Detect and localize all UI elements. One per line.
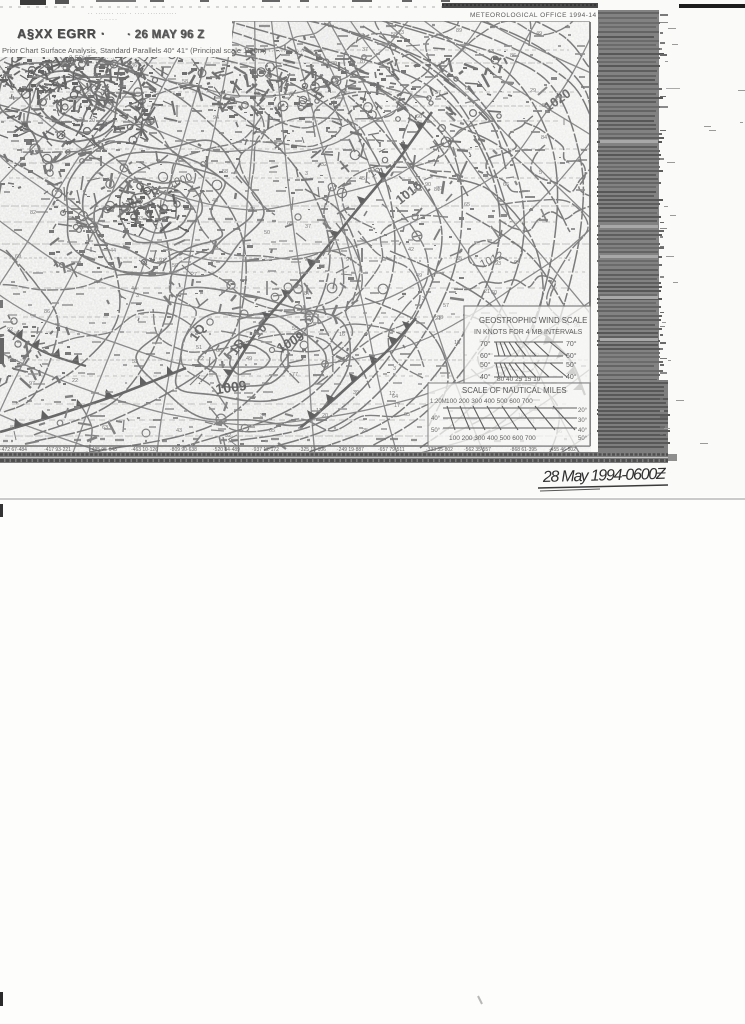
svg-text:38: 38 (437, 315, 443, 321)
svg-text:32: 32 (377, 88, 383, 94)
svg-text:37: 37 (305, 224, 311, 230)
svg-text:100 200 300 400 500 600 700: 100 200 300 400 500 600 700 (446, 398, 533, 405)
svg-text:93: 93 (137, 216, 143, 222)
svg-text:90: 90 (425, 182, 431, 188)
svg-text:85: 85 (456, 256, 462, 262)
svg-text:· 26 MAY 96 Z: · 26 MAY 96 Z (127, 29, 204, 41)
svg-text:20: 20 (322, 413, 328, 419)
svg-text:58: 58 (182, 79, 188, 85)
svg-text:70°: 70° (566, 340, 577, 348)
svg-text:80 40 25 15 10: 80 40 25 15 10 (497, 376, 541, 383)
svg-text:50°: 50° (566, 361, 577, 369)
svg-text:65: 65 (464, 202, 470, 208)
svg-text:78: 78 (288, 92, 294, 98)
svg-text:50°: 50° (480, 361, 491, 369)
svg-text:82: 82 (30, 210, 36, 216)
svg-text:23: 23 (398, 30, 404, 36)
svg-text:81: 81 (434, 187, 440, 193)
svg-text:94: 94 (213, 115, 219, 121)
svg-text:80: 80 (7, 39, 13, 45)
svg-text:3: 3 (422, 296, 425, 302)
svg-text:21: 21 (484, 289, 490, 295)
svg-text:49: 49 (212, 198, 218, 204)
svg-text:44: 44 (131, 286, 137, 292)
svg-text:45: 45 (359, 176, 365, 182)
svg-text:64: 64 (392, 394, 398, 400)
svg-text:42: 42 (408, 247, 414, 253)
svg-text:29: 29 (331, 61, 337, 67)
svg-text:66: 66 (503, 182, 509, 188)
svg-text:39: 39 (353, 390, 359, 396)
svg-text:91: 91 (159, 258, 165, 264)
svg-text:92: 92 (7, 327, 13, 333)
svg-text:60°: 60° (480, 352, 491, 360)
svg-text:86: 86 (44, 309, 50, 315)
svg-text:16: 16 (339, 332, 345, 338)
svg-text:30°: 30° (578, 418, 588, 424)
svg-text:60: 60 (491, 290, 497, 296)
svg-text:100 200 300 400 500 600 700: 100 200 300 400 500 600 700 (449, 435, 536, 442)
svg-text:49: 49 (246, 356, 252, 362)
svg-text:50°: 50° (431, 428, 441, 434)
svg-text:24: 24 (79, 117, 85, 123)
svg-text:89: 89 (456, 28, 462, 34)
svg-text:57: 57 (435, 90, 441, 96)
svg-text:SCALE OF NAUTICAL MILES: SCALE OF NAUTICAL MILES (462, 386, 567, 395)
svg-text:92: 92 (85, 93, 91, 99)
svg-text:65: 65 (269, 428, 275, 434)
svg-text:50: 50 (172, 263, 178, 269)
svg-text:3: 3 (305, 171, 308, 177)
svg-text:87: 87 (304, 291, 310, 297)
svg-text:6: 6 (340, 214, 343, 220)
svg-text:IN KNOTS FOR 4 MB INTERVALS: IN KNOTS FOR 4 MB INTERVALS (474, 329, 583, 336)
svg-text:3: 3 (136, 293, 139, 299)
svg-text:99: 99 (514, 260, 520, 266)
svg-text:66: 66 (216, 348, 222, 354)
svg-text:81: 81 (10, 425, 16, 431)
svg-text:57: 57 (443, 303, 449, 309)
svg-text:A§XX EGRR ·: A§XX EGRR · (17, 27, 106, 41)
svg-text:84: 84 (541, 135, 547, 141)
svg-text:20°: 20° (578, 408, 588, 414)
svg-text:50°: 50° (578, 436, 588, 442)
svg-text:40°: 40° (578, 428, 588, 434)
svg-text:·· ·· ······: ·· ·· ······ (100, 17, 118, 22)
svg-text:94: 94 (312, 259, 318, 265)
svg-text:69: 69 (15, 254, 21, 260)
svg-text:GEOSTROPHIC WIND SCALE: GEOSTROPHIC WIND SCALE (479, 316, 587, 325)
svg-text:63: 63 (228, 281, 234, 287)
svg-text:Prior Chart Surface Analysis,: Prior Chart Surface Analysis, Standard P… (2, 46, 322, 55)
svg-text:58: 58 (222, 169, 228, 175)
svg-text:63: 63 (404, 412, 410, 418)
svg-text:43: 43 (176, 428, 182, 434)
svg-text:3: 3 (393, 366, 396, 372)
svg-text:28 Mау 1994-0600Ƶ: 28 Mау 1994-0600Ƶ (542, 466, 668, 486)
svg-text:40°: 40° (431, 416, 441, 422)
svg-text:29: 29 (530, 88, 536, 94)
svg-text:63: 63 (465, 86, 471, 92)
svg-text:40°: 40° (480, 373, 491, 381)
svg-text:1:20M: 1:20M (430, 399, 447, 405)
svg-text:60°: 60° (566, 352, 577, 360)
svg-text:66: 66 (416, 114, 422, 120)
svg-text:METEOROLOGICAL OFFICE 1994-14: METEOROLOGICAL OFFICE 1994-14 15 (470, 12, 607, 19)
svg-text:51: 51 (196, 345, 202, 351)
svg-text:40°: 40° (566, 373, 577, 381)
svg-text:49: 49 (416, 273, 422, 279)
svg-text:77: 77 (292, 372, 298, 378)
svg-text:27: 27 (191, 272, 197, 278)
svg-text:63: 63 (102, 425, 108, 431)
svg-text:22: 22 (198, 356, 204, 362)
svg-text:5: 5 (539, 170, 542, 176)
svg-text:90: 90 (319, 264, 325, 270)
svg-text:50: 50 (264, 230, 270, 236)
svg-text:37: 37 (93, 73, 99, 79)
svg-text:18: 18 (454, 340, 460, 346)
svg-text:12: 12 (219, 37, 225, 43)
svg-text:44: 44 (110, 248, 116, 254)
svg-text:22: 22 (72, 378, 78, 384)
svg-text:··· Л ΕΡΗΣ·· ····· ···: ··· Л ΕΡΗΣ·· ····· ··· (60, 55, 117, 62)
svg-text:70°: 70° (480, 340, 491, 348)
svg-text:87: 87 (360, 59, 366, 65)
